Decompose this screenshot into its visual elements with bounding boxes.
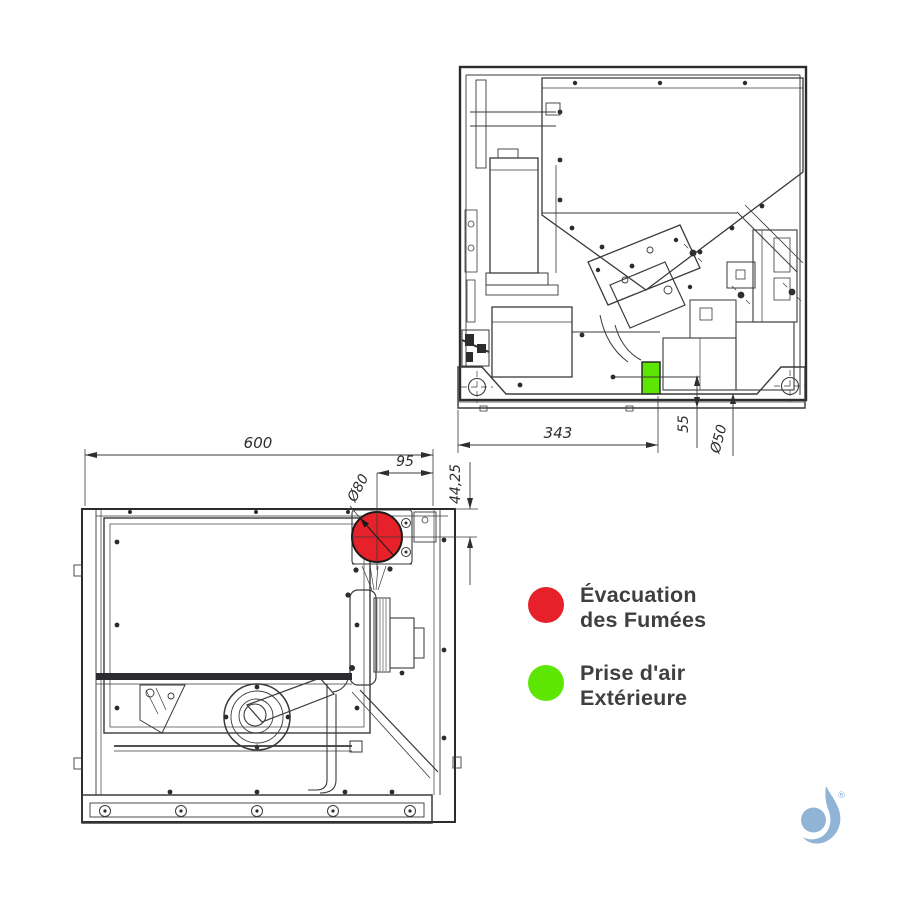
green-legend-circle bbox=[528, 665, 564, 701]
dim-label-343: 343 bbox=[544, 424, 573, 442]
legend-label-air-line1: Prise d'air bbox=[580, 661, 687, 686]
pellet-hopper bbox=[542, 78, 803, 290]
water-drop-icon: ® bbox=[795, 783, 849, 851]
side-section-view: 343 55 Ø50 bbox=[458, 67, 806, 456]
dim-label-d80: Ø80 bbox=[344, 472, 372, 506]
legend-item-outside-air: Prise d'air Extérieure bbox=[527, 664, 687, 711]
dimension-343: 343 bbox=[458, 396, 658, 453]
rear-view: 600 95 44,25 Ø80 bbox=[74, 434, 478, 823]
side-view-frame bbox=[460, 67, 806, 400]
air-intake-port bbox=[611, 362, 742, 394]
dim-label-44-25: 44,25 bbox=[448, 464, 464, 504]
legend-label-smoke: Évacuation des Fumées bbox=[580, 583, 706, 633]
auger-tube-flange bbox=[224, 678, 334, 750]
side-view-base bbox=[458, 367, 806, 411]
legend-label-air: Prise d'air Extérieure bbox=[580, 661, 687, 711]
dim-label-55: 55 bbox=[676, 415, 692, 433]
burner-box bbox=[492, 307, 660, 377]
left-column-hardware bbox=[465, 80, 560, 322]
technical-drawing-canvas: 343 55 Ø50 bbox=[0, 0, 900, 900]
auger-motor-assembly bbox=[588, 225, 700, 362]
legend-label-smoke-line2: des Fumées bbox=[580, 608, 706, 633]
dim-label-95: 95 bbox=[396, 454, 414, 470]
outside-air-swatch bbox=[527, 664, 565, 702]
legend-item-smoke-evacuation: Évacuation des Fumées bbox=[527, 586, 706, 633]
legend-label-smoke-line1: Évacuation bbox=[580, 583, 706, 608]
dim-label-600: 600 bbox=[244, 434, 273, 452]
dimension-55: 55 bbox=[676, 375, 700, 448]
dimension-95: 95 bbox=[377, 454, 433, 476]
dimension-d50: Ø50 bbox=[707, 393, 736, 456]
dimension-600: 600 bbox=[85, 434, 433, 506]
brand-logo: ® bbox=[795, 783, 849, 851]
registered-trademark-symbol: ® bbox=[837, 791, 846, 801]
red-legend-circle bbox=[528, 587, 564, 623]
drawing-sheet: { "page": { "background": "#ffffff" }, "… bbox=[0, 0, 900, 900]
dimension-44-25: 44,25 bbox=[448, 462, 478, 585]
legend-label-air-line2: Extérieure bbox=[580, 686, 687, 711]
dim-label-d50: Ø50 bbox=[707, 423, 730, 456]
dimension-d80: Ø80 bbox=[344, 472, 372, 506]
rear-view-base bbox=[82, 790, 432, 823]
heat-exchanger-cylinder bbox=[486, 149, 558, 295]
smoke-evacuation-swatch bbox=[527, 586, 565, 624]
